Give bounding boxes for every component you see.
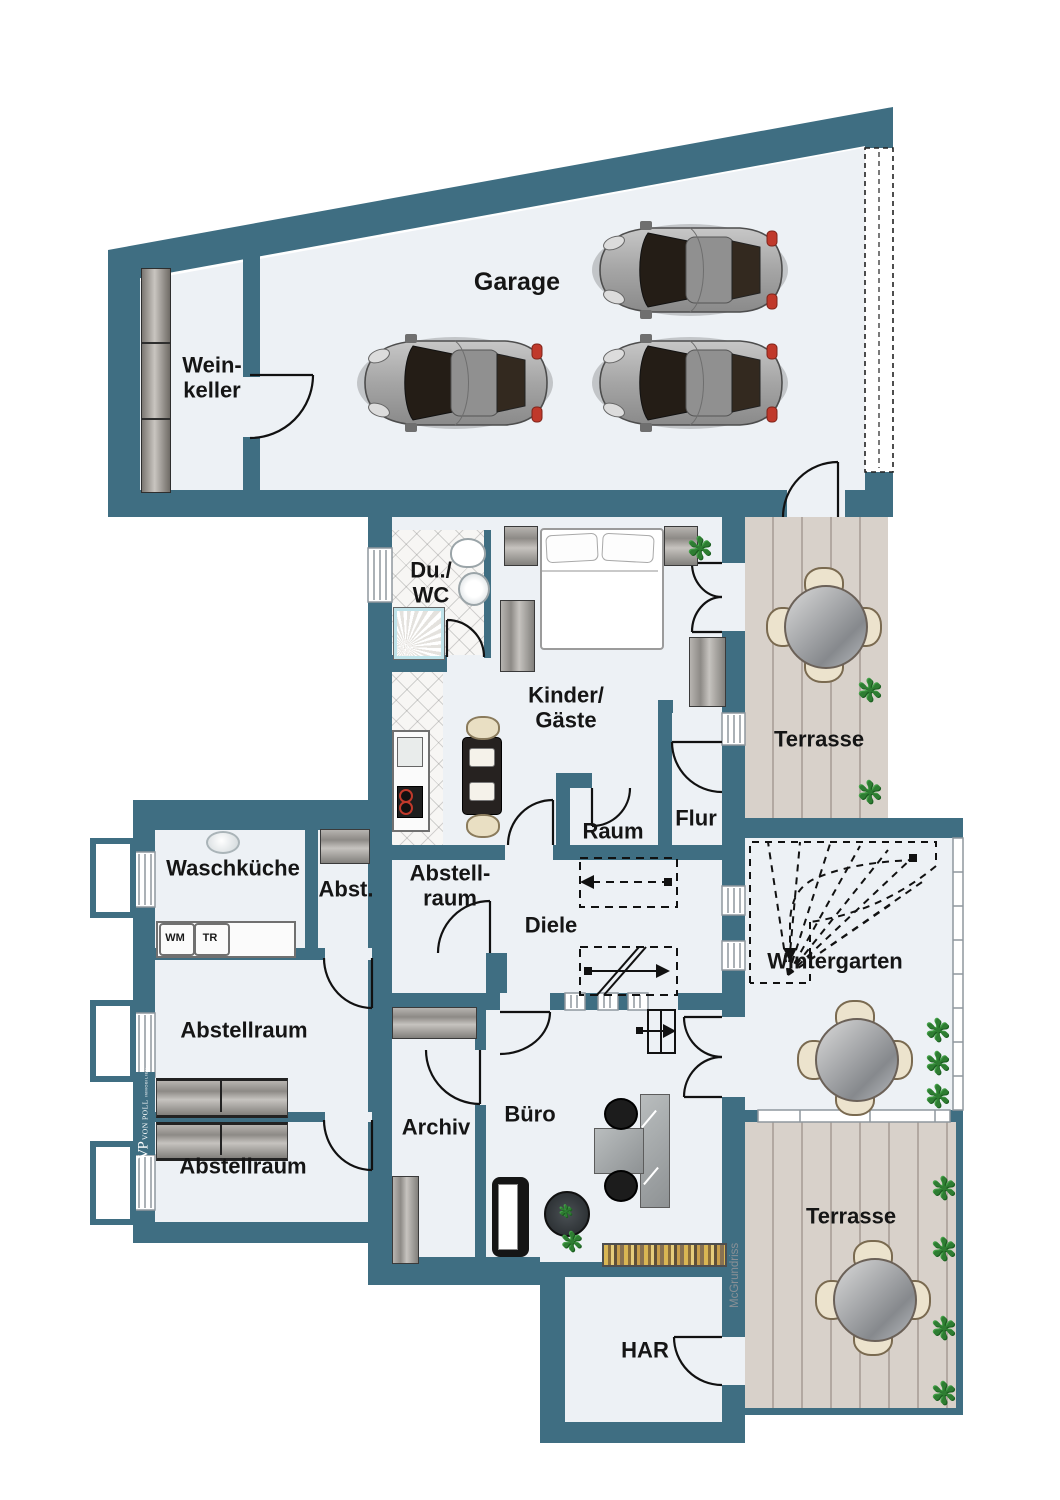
- wardrobe-right: [689, 637, 726, 707]
- shower-icon: [394, 608, 444, 659]
- wardrobe-left: [500, 600, 535, 672]
- shelf-unit-1: [156, 1078, 288, 1118]
- mcgrundriss-watermark: McGrundriss: [729, 1243, 741, 1308]
- stool-2: [466, 814, 500, 838]
- wine-rack-1: [141, 268, 171, 343]
- plant-icon-kinder: ✻: [687, 535, 712, 565]
- shelf-divider-1: [220, 1078, 222, 1112]
- room-label-weinkeller: Wein- keller: [182, 353, 241, 402]
- bathroom-sink-icon: [458, 572, 490, 606]
- plant-icon-terrB-1: ✻: [931, 1175, 956, 1205]
- room-label-buero: Büro: [504, 1103, 555, 1128]
- sofa-cushion: [498, 1184, 518, 1250]
- room-label-garage: Garage: [474, 268, 560, 296]
- room-label-diele: Diele: [525, 914, 578, 939]
- round-table: [833, 1258, 917, 1342]
- room-label-terrasse-unten: Terrasse: [806, 1205, 896, 1230]
- wintergarten-table: [797, 1000, 913, 1116]
- burner-icon-2: [399, 801, 413, 815]
- room-label-abstellraum-unten: Abstellraum: [179, 1155, 306, 1180]
- room-label-terrasse-oben: Terrasse: [774, 728, 864, 753]
- room-label-flur: Flur: [675, 807, 717, 832]
- vonpoll-logo: VP VON POLL IMMOBILIEN: [133, 1072, 155, 1155]
- washer-label: WM: [165, 932, 185, 944]
- plant-icon-winter-2: ✻: [925, 1050, 950, 1080]
- terrace-table-top: [766, 567, 882, 683]
- room-label-raum: Raum: [582, 820, 643, 845]
- stool-1: [466, 716, 500, 740]
- garage-door: [865, 148, 893, 472]
- dryer-label: TR: [203, 932, 218, 944]
- door-har-terrace: [674, 1337, 722, 1385]
- plant-icon-terrA-1: ✻: [857, 677, 882, 707]
- door-abst-abstellraum: [324, 958, 372, 1008]
- ceiling-lamp-icon: [206, 831, 240, 854]
- door-abstellraum-unten: [324, 1120, 372, 1170]
- duvet-fold: [542, 570, 658, 572]
- stair-steps-buero: [636, 1010, 676, 1053]
- room-label-archiv: Archiv: [402, 1116, 470, 1141]
- kitchen-sink-icon: [397, 737, 423, 767]
- light-well-2: [90, 1000, 136, 1082]
- door-kinder-terrace-1: [692, 563, 722, 597]
- room-label-wintergarten: Wintergarten: [767, 950, 902, 975]
- room-label-abst: Abst.: [319, 878, 374, 903]
- pillow-left: [545, 533, 598, 564]
- plant-icon-buero: ✻: [561, 1229, 583, 1255]
- car-icon-2: [357, 334, 553, 432]
- pillow-right: [601, 533, 654, 564]
- plant-icon-coffee-table: ✻: [559, 1205, 572, 1221]
- door-buero-wintergarten-1: [684, 1017, 722, 1057]
- round-table: [815, 1018, 899, 1102]
- archiv-cabinet: [392, 1176, 419, 1264]
- room-label-har: HAR: [621, 1339, 669, 1364]
- floor-plan: WM TR ✻ ✻ ✻ ✻ ✻ ✻ ✻ ✻ ✻ ✻ ✻ ✻ Gar: [0, 0, 1060, 1500]
- room-label-kinder: Kinder/ Gäste: [528, 683, 604, 732]
- nightstand-left: [504, 526, 538, 566]
- plant-icon-winter-3: ✻: [925, 1083, 950, 1113]
- door-kinder-terrace-2: [692, 597, 722, 632]
- bookshelf: [602, 1243, 727, 1267]
- abst-cabinet: [320, 829, 370, 864]
- light-well-3: [90, 1141, 136, 1225]
- round-table: [784, 585, 868, 669]
- terrace-table-bottom: [815, 1240, 931, 1356]
- car-icon-3: [592, 334, 788, 432]
- door-diele-buero: [500, 1012, 550, 1054]
- plant-icon-winter-1: ✻: [925, 1017, 950, 1047]
- wine-rack-3: [141, 419, 171, 493]
- vonpoll-logo-text: VP VON POLL IMMOBILIEN: [136, 1068, 153, 1160]
- room-label-waschkueche: Waschküche: [166, 857, 300, 882]
- plant-icon-terrA-2: ✻: [857, 779, 882, 809]
- toilet-icon: [450, 538, 486, 568]
- door-kinder-flur: [672, 742, 722, 792]
- shelf-divider-2: [220, 1122, 222, 1155]
- stair-diele-lower: [580, 947, 677, 995]
- room-label-abstellraum-mitte: Abstell- raum: [410, 861, 491, 910]
- plate-1: [469, 748, 495, 767]
- room-label-duwc: Du./ WC: [410, 558, 452, 607]
- wine-rack-2: [141, 343, 171, 419]
- plate-2: [469, 782, 495, 801]
- stair-diele-upper: [580, 858, 677, 907]
- plant-icon-terrB-2: ✻: [931, 1236, 956, 1266]
- sofa: [492, 1177, 529, 1257]
- door-duwc: [447, 620, 484, 657]
- light-well-1: [90, 838, 136, 918]
- plant-icon-terrB-3: ✻: [931, 1315, 956, 1345]
- archiv-sideboard: [392, 1007, 477, 1039]
- door-kinder-diele: [508, 800, 553, 845]
- door-archiv: [426, 1050, 480, 1104]
- plant-icon-terrB-4: ✻: [931, 1380, 956, 1410]
- office-chair-2: [604, 1170, 638, 1202]
- room-label-abstellraum-links: Abstellraum: [180, 1019, 307, 1044]
- door-buero-wintergarten-2: [684, 1057, 722, 1097]
- office-chair-1: [604, 1098, 638, 1130]
- car-icon-1: [592, 221, 788, 319]
- desk-wing: [594, 1128, 644, 1174]
